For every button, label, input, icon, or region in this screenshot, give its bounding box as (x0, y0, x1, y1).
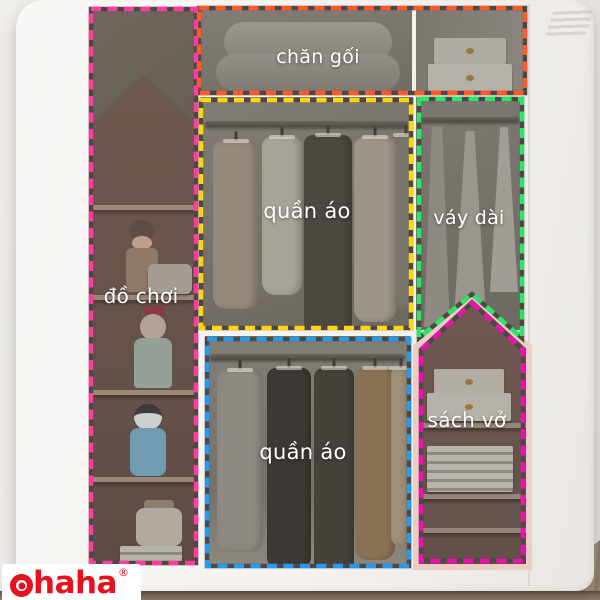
hanging-garment (396, 135, 413, 310)
shelf (417, 494, 529, 499)
brand-logo: haha ® (2, 564, 141, 600)
zone-label-sach-vo: sách vở (428, 408, 507, 432)
shelf (417, 528, 529, 533)
registered-trademark-icon: ® (118, 567, 129, 579)
storage-box (434, 38, 506, 64)
hanging-garment (391, 368, 410, 546)
hanging-garment (354, 137, 396, 322)
zone-label-quan-ao-tren: quần áo (263, 199, 350, 223)
hanging-garment (355, 368, 395, 560)
toy-girl-body (134, 338, 172, 388)
compartment-books-house (417, 296, 529, 568)
wardrobe-product-image: chăn gối đồ chơi quần áo váy dài quần áo… (0, 0, 600, 600)
hanging-rod (421, 117, 519, 122)
shelf (90, 477, 197, 482)
compartment-top-boxes (416, 8, 524, 93)
jar (136, 508, 182, 546)
book-stack (120, 546, 182, 562)
shelf (90, 390, 197, 395)
hanging-rod (205, 121, 408, 127)
zone-label-quan-ao-duoi: quần áo (259, 440, 346, 464)
logo-o-glyph (10, 574, 33, 597)
zone-label-do-choi: đồ chơi (104, 284, 179, 308)
shelf (90, 205, 197, 210)
book-stack (427, 446, 513, 492)
storage-box (428, 64, 512, 92)
toy-astronaut-body (130, 428, 166, 476)
hanging-garment (217, 370, 263, 552)
hanging-garment (213, 141, 258, 309)
zone-label-chan-goi: chăn gối (276, 46, 360, 68)
hanging-garment (267, 368, 311, 568)
storage-box (434, 369, 504, 394)
zone-label-vay-dai: váy dài (433, 207, 504, 229)
toy-astronaut-helmet (134, 404, 162, 430)
toy-girl-head (140, 314, 166, 340)
logo-text: haha (33, 567, 117, 600)
hanging-garment (304, 135, 352, 330)
hanging-garment (314, 368, 354, 568)
